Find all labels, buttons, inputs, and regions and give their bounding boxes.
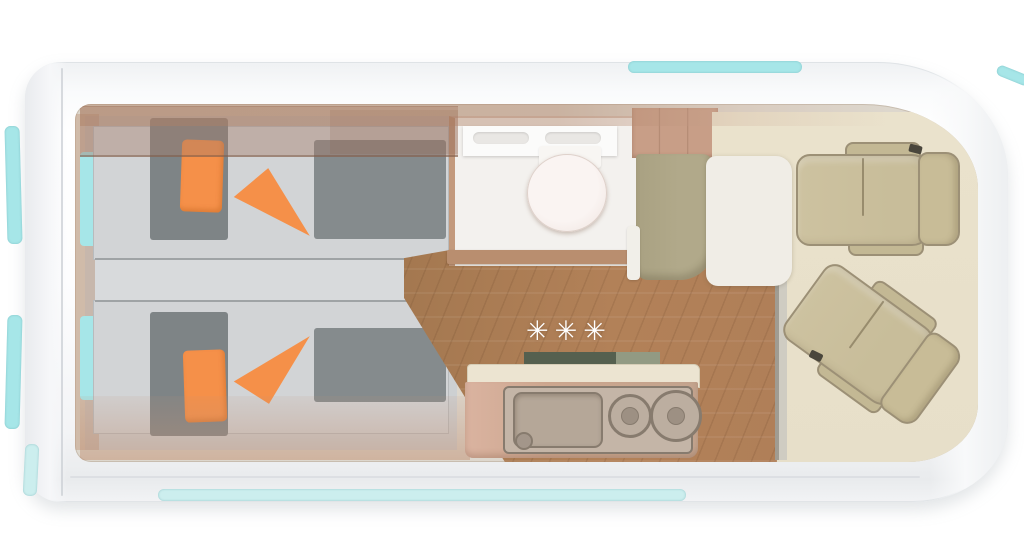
rear-corner-window <box>23 444 40 497</box>
dinette-table <box>706 156 792 286</box>
sink-faucet-icon <box>515 432 533 450</box>
seat-crease <box>862 158 864 216</box>
kitchen-unit <box>465 352 700 460</box>
interior-cutaway: ✳✳✳ <box>75 104 978 462</box>
burner-ring-icon <box>667 407 685 425</box>
wardrobe-cabinet <box>632 108 718 158</box>
bathroom <box>449 116 648 266</box>
mattress-top-foot <box>314 140 446 239</box>
roof-window-strip <box>628 61 802 73</box>
body-side-seam <box>70 476 920 478</box>
rear-window-lower <box>5 315 23 429</box>
swivel-seat-front <box>790 142 958 254</box>
campervan-floorplan: ✳✳✳ <box>0 0 1024 559</box>
bench-pillar <box>627 226 640 280</box>
rear-door-seam <box>61 68 63 496</box>
hob-burner-right <box>650 390 702 442</box>
toilet <box>527 154 607 232</box>
pillow-bottom-bed <box>183 349 227 422</box>
bed-aisle <box>95 258 433 302</box>
seat-cushion <box>796 154 932 246</box>
hob-burner-left <box>608 394 652 438</box>
seat-backrest <box>918 152 960 246</box>
bench-seat <box>636 154 714 280</box>
burner-ring-icon <box>621 407 639 425</box>
bathroom-threshold <box>447 250 637 264</box>
shelf-recess-right <box>545 132 601 144</box>
mattress-bottom-foot <box>314 328 446 402</box>
rear-window-upper <box>4 126 22 244</box>
gas-hob-asterisks-icon: ✳✳✳ <box>526 314 626 350</box>
side-window-strip <box>158 489 686 501</box>
pillow-top-bed <box>180 139 224 212</box>
shelf-recess-left <box>473 132 529 144</box>
